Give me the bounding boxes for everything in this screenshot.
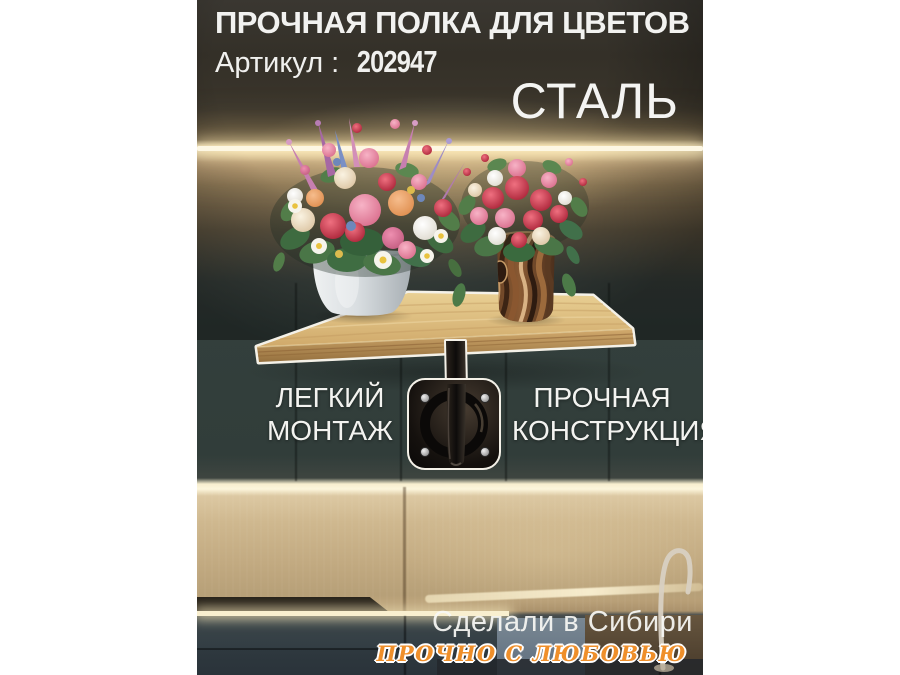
feature-sturdy-line1: ПРОЧНАЯ	[512, 381, 692, 414]
product-poster: ПРОЧНАЯ ПОЛКА ДЛЯ ЦВЕТОВ Артикул : 20294…	[197, 0, 703, 675]
mixed-flower-bouquet	[270, 118, 465, 279]
article-number: 202947	[357, 44, 437, 80]
article-label: Артикул :	[215, 47, 339, 80]
feature-sturdy-construction: ПРОЧНАЯ КОНСТРУКЦИЯ	[512, 381, 692, 447]
material-label: СТАЛЬ	[511, 72, 679, 130]
feature-easy-mount: ЛЕГКИЙ МОНТАЖ	[240, 381, 420, 447]
page: ПРОЧНАЯ ПОЛКА ДЛЯ ЦВЕТОВ Артикул : 20294…	[0, 0, 900, 675]
origin-text: Сделали в Сибири	[432, 606, 693, 639]
article-row: Артикул : 202947	[215, 44, 446, 80]
feature-easy-mount-line2: МОНТАЖ	[240, 414, 420, 447]
slogan-text: ПРОЧНО С ЛЮБОВЬЮ	[376, 641, 687, 666]
poster-title: ПРОЧНАЯ ПОЛКА ДЛЯ ЦВЕТОВ	[215, 5, 687, 41]
feature-easy-mount-line1: ЛЕГКИЙ	[240, 381, 420, 414]
feature-sturdy-line2: КОНСТРУКЦИЯ	[512, 414, 692, 447]
